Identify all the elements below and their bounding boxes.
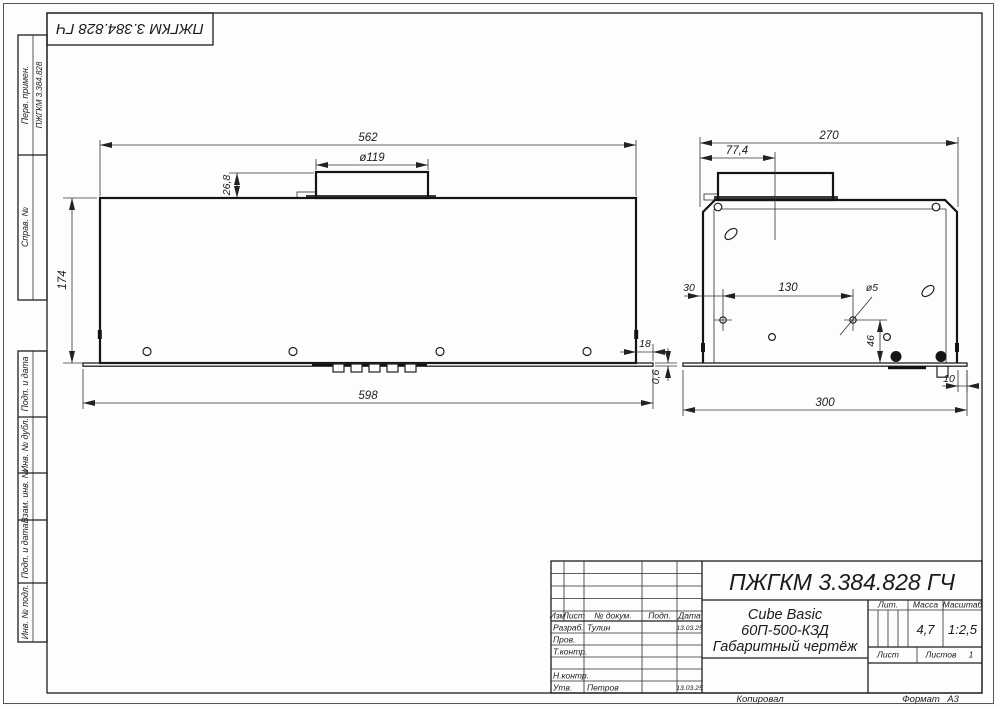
label-podp-data-1: Подп. и дата — [20, 356, 30, 411]
latch-left — [98, 330, 102, 339]
lit-label: Лит. — [877, 600, 898, 610]
row-utv: Утв. — [552, 683, 572, 693]
hood-body-front — [100, 198, 636, 363]
copied-label: Копировал — [736, 694, 784, 705]
listov-label: Листов — [925, 650, 958, 660]
col-list: Лист — [562, 611, 585, 621]
product-name-3: Габаритный чертёж — [713, 639, 858, 655]
latch-side-right — [955, 343, 959, 352]
dim-18: 18 — [639, 338, 651, 350]
small-hole — [884, 334, 891, 341]
dim-hole-dia: ø5 — [866, 282, 878, 294]
row-razrab: Разраб. — [553, 623, 584, 633]
format-value: А3 — [946, 694, 959, 705]
row-prov: Пров. — [553, 635, 575, 645]
product-name-2: 60П-500-КЗД — [741, 623, 829, 639]
corner-hole — [714, 203, 722, 211]
switch-button — [351, 364, 362, 372]
top-rotated-stamp: ПЖГКМ 3.384.828 ГЧ — [47, 13, 213, 45]
flue-side — [718, 173, 833, 200]
utv-name: Петров — [587, 683, 619, 693]
dim-300: 300 — [815, 397, 835, 409]
row-tkontr: Т.контр. — [553, 647, 587, 657]
listov-value: 1 — [969, 650, 974, 660]
dim-270: 270 — [818, 130, 839, 142]
flue-base-strip-side — [714, 196, 838, 199]
dim-10: 10 — [943, 373, 955, 385]
col-doc: № докум. — [594, 611, 631, 621]
panel-dark-strip — [888, 366, 926, 369]
foot-screw — [936, 351, 947, 362]
oval-slot — [723, 226, 739, 241]
row-nkontr: Н.контр. — [553, 671, 589, 681]
side-view: 270 77,4 30 130 ø5 46 10 300 — [683, 130, 979, 416]
switch-button — [405, 364, 416, 372]
dim-77-4: 77,4 — [726, 145, 748, 157]
format-label: Формат — [902, 694, 940, 705]
dim-598: 598 — [358, 390, 378, 402]
screw-hole — [436, 348, 444, 356]
latch-side-left — [701, 343, 705, 352]
razrab-name: Тулин — [587, 623, 611, 633]
small-hole — [769, 334, 776, 341]
dim-0-6: 0,6 — [650, 370, 662, 385]
switch-button — [333, 364, 344, 372]
engineering-drawing-svg: ПЖГКМ 3.384.828 ГЧ Перв. примен. ПЖГКМ 3… — [0, 0, 1000, 707]
switch-button — [387, 364, 398, 372]
title-block: ПЖГКМ 3.384.828 ГЧ Cube Basic 60П-500-КЗ… — [550, 561, 984, 693]
dim-26-8: 26,8 — [221, 175, 233, 197]
massa-value: 4,7 — [916, 622, 935, 637]
list-label: Лист — [876, 650, 899, 660]
flue-front — [316, 172, 428, 198]
dim-flue-dia: ø119 — [359, 152, 385, 164]
drawing-sheet: ПЖГКМ 3.384.828 ГЧ Перв. примен. ПЖГКМ 3… — [0, 0, 1000, 707]
massa-label: Масса — [913, 600, 938, 610]
margin-cells-bottom: Подп. и дата Инв. № дубл. Взам. инв. № П… — [18, 351, 47, 642]
col-podp: Подп. — [648, 611, 671, 621]
col-data: Дата — [677, 611, 701, 621]
label-sprav-no: Справ. № — [20, 207, 30, 247]
razrab-date: 13.03.25 — [676, 625, 703, 632]
label-perv-primen: Перв. примен. — [20, 66, 30, 124]
screw-hole — [143, 348, 151, 356]
front-view: 562 ø119 26,8 174 18 0,6 598 — [57, 132, 677, 409]
side-view-dimensions — [683, 137, 979, 416]
label-podp-data-2: Подп. и дата — [20, 523, 30, 578]
foot-screw — [891, 351, 902, 362]
dim-174: 174 — [57, 270, 69, 289]
utv-date: 13.03.25 — [676, 685, 703, 692]
dim-130: 130 — [778, 282, 798, 294]
bottom-panel-side — [683, 363, 967, 366]
screw-hole — [583, 348, 591, 356]
product-name-1: Cube Basic — [748, 607, 823, 623]
value-perv-primen: ПЖГКМ 3.384.828 — [35, 61, 44, 128]
corner-hole — [932, 203, 940, 211]
label-inv-podl: Инв. № подл. — [20, 585, 30, 640]
stamp-doc-number: ПЖГКМ 3.384.828 ГЧ — [55, 20, 203, 37]
masshtab-label: Масштаб — [943, 600, 984, 610]
masshtab-value: 1:2,5 — [948, 622, 978, 637]
dim-30: 30 — [683, 282, 695, 294]
screw-hole — [289, 348, 297, 356]
latch-right — [634, 330, 638, 339]
sheet-frame — [4, 4, 994, 704]
dim-562: 562 — [358, 132, 378, 144]
hood-body-side — [703, 200, 957, 363]
label-inv-dubl: Инв. № дубл. — [20, 418, 30, 472]
dim-46: 46 — [865, 335, 877, 347]
doc-number: ПЖГКМ 3.384.828 ГЧ — [729, 569, 956, 595]
label-vzam-inv: Взам. инв. № — [20, 469, 30, 523]
switch-button — [369, 364, 380, 372]
margin-cells-top: Перв. примен. ПЖГКМ 3.384.828 Справ. № — [18, 35, 47, 300]
oval-slot — [920, 283, 936, 298]
